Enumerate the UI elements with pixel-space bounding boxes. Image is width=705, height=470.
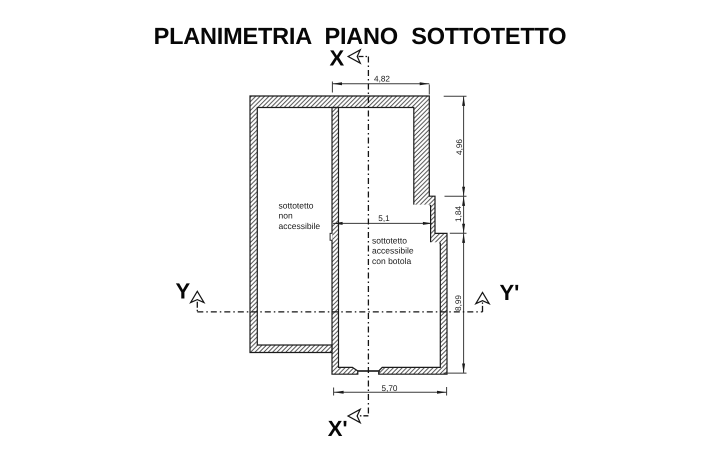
svg-text:4,82: 4,82 — [374, 74, 390, 83]
svg-text:5,1: 5,1 — [378, 214, 390, 223]
svg-text:con botola: con botola — [372, 256, 411, 266]
svg-text:sottotetto: sottotetto — [372, 236, 407, 246]
svg-text:1,84: 1,84 — [454, 206, 463, 222]
svg-text:X': X' — [328, 416, 348, 441]
svg-text:Y: Y — [176, 278, 191, 303]
svg-text:sottotetto: sottotetto — [279, 201, 314, 211]
svg-text:5,70: 5,70 — [382, 384, 398, 393]
svg-text:8,99: 8,99 — [454, 295, 463, 311]
svg-text:4,96: 4,96 — [455, 139, 464, 155]
svg-text:accessibile: accessibile — [279, 221, 321, 231]
svg-text:X: X — [330, 45, 345, 70]
svg-text:accessibile: accessibile — [372, 246, 414, 256]
svg-text:non: non — [279, 211, 293, 221]
svg-text:Y': Y' — [500, 280, 520, 305]
svg-text:PLANIMETRIA PIANO SOTTOTETTO: PLANIMETRIA PIANO SOTTOTETTO — [154, 23, 567, 49]
